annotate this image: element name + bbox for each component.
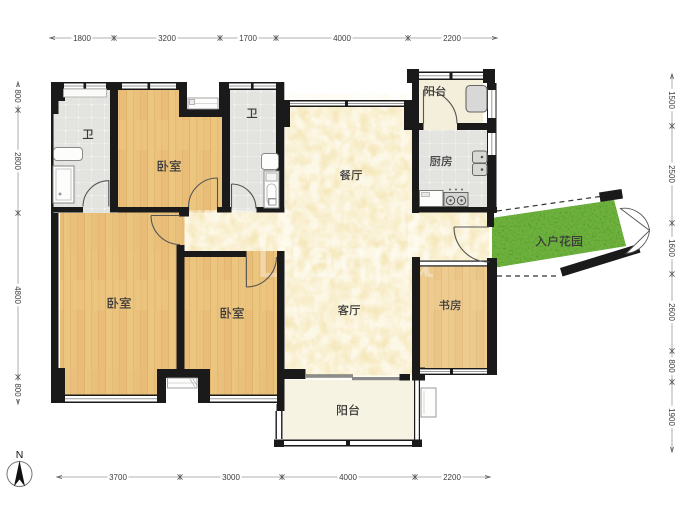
svg-text:1900: 1900 [667,408,676,426]
svg-text:2500: 2500 [667,165,676,183]
svg-text:4800: 4800 [13,286,22,304]
svg-text:3200: 3200 [158,34,176,43]
svg-text:3700: 3700 [109,473,127,482]
svg-text:4000: 4000 [339,473,357,482]
svg-text:800: 800 [667,359,676,373]
svg-text:1500: 1500 [667,91,676,109]
svg-text:800: 800 [13,383,22,397]
svg-text:2600: 2600 [667,303,676,321]
svg-text:1800: 1800 [73,34,91,43]
svg-text:800: 800 [13,89,22,103]
svg-text:2200: 2200 [443,34,461,43]
svg-text:4000: 4000 [333,34,351,43]
svg-text:N: N [16,449,24,461]
svg-text:3000: 3000 [222,473,240,482]
svg-text:2200: 2200 [443,473,461,482]
svg-text:2800: 2800 [13,152,22,170]
svg-text:1700: 1700 [239,34,257,43]
svg-text:1600: 1600 [667,239,676,257]
